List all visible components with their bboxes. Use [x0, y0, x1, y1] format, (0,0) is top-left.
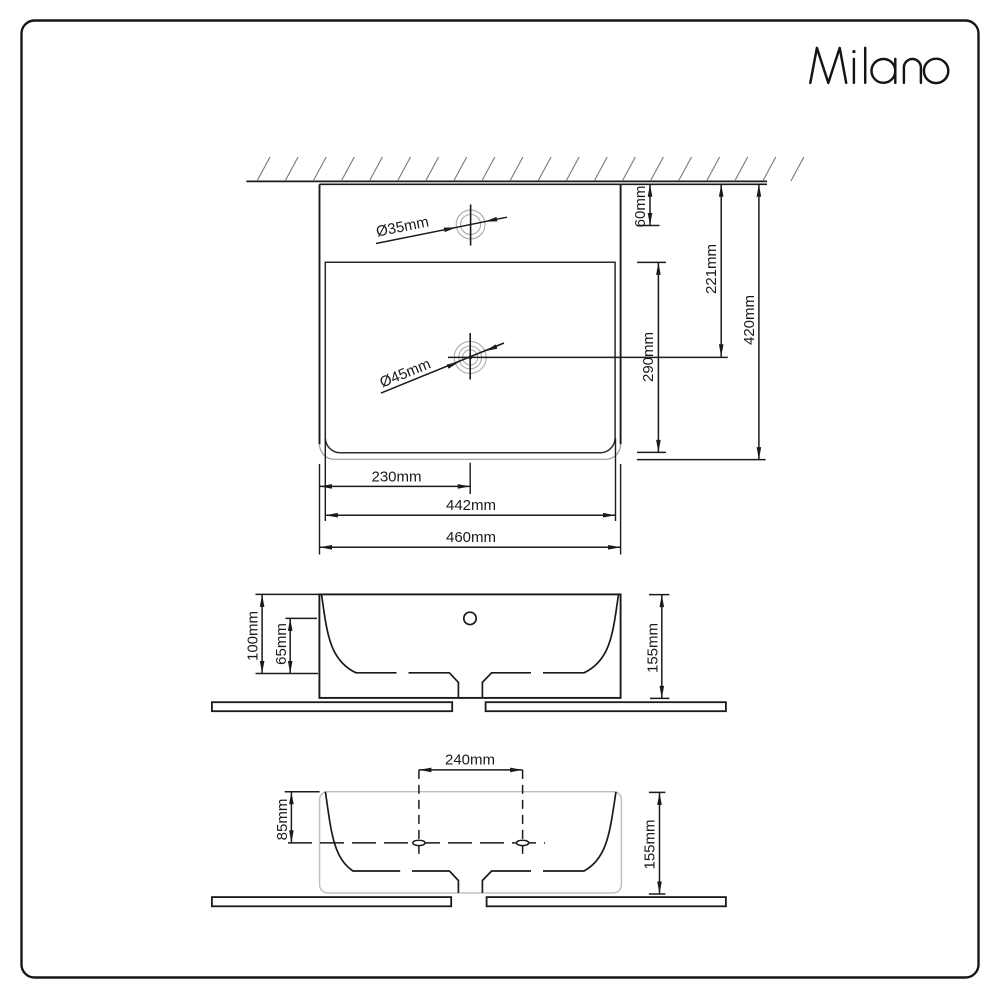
svg-text:155mm: 155mm — [642, 819, 659, 869]
svg-text:Ø35mm: Ø35mm — [375, 213, 431, 240]
svg-text:221mm: 221mm — [703, 244, 720, 294]
svg-text:100mm: 100mm — [244, 611, 261, 661]
svg-text:60mm: 60mm — [632, 186, 649, 228]
svg-text:290mm: 290mm — [640, 332, 657, 382]
svg-text:85mm: 85mm — [274, 799, 291, 841]
svg-text:65mm: 65mm — [273, 623, 290, 665]
svg-text:460mm: 460mm — [446, 529, 496, 546]
svg-text:230mm: 230mm — [371, 469, 421, 486]
svg-text:240mm: 240mm — [445, 752, 495, 769]
svg-text:442mm: 442mm — [446, 497, 496, 514]
svg-text:420mm: 420mm — [741, 295, 758, 345]
svg-text:155mm: 155mm — [645, 623, 662, 673]
svg-text:Ø45mm: Ø45mm — [377, 355, 433, 391]
